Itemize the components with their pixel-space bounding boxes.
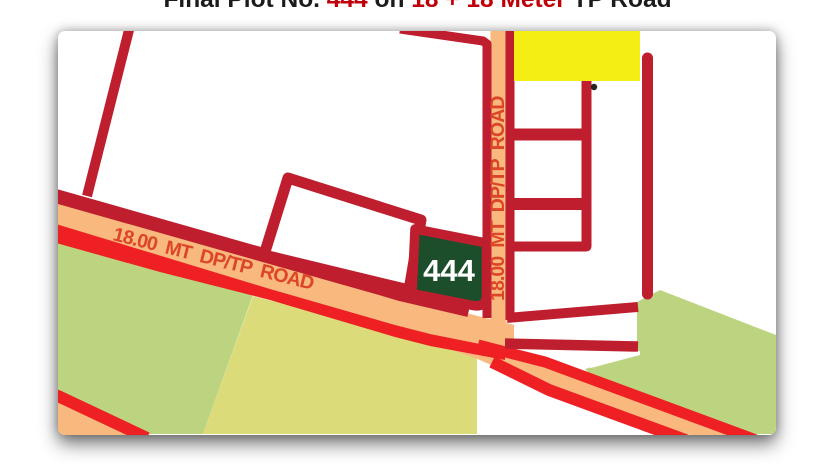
svg-text:18.00 MT DP/TP ROAD: 18.00 MT DP/TP ROAD [487,95,509,301]
svg-text:444: 444 [423,253,475,288]
